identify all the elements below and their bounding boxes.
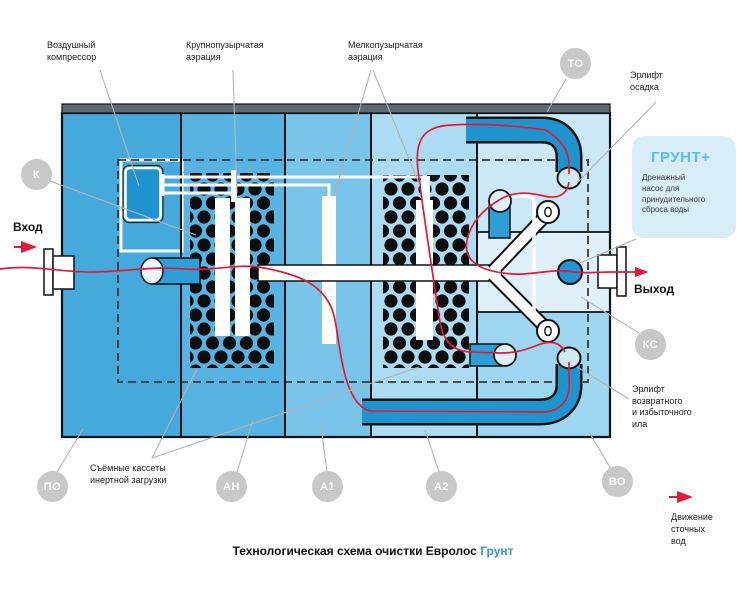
compressor-unit [123,166,163,223]
grunt-plus-description: Дренажный насос для принудительного сбро… [642,173,728,216]
inlet-pipe [53,256,74,289]
grunt-plus-box: ГРУНТ+ Дренажный насос для принудительно… [632,136,736,238]
page-title: Технологическая схема очистки Евролос Гр… [0,544,746,558]
label-fine-aeration: Мелкопузырчатая аэрация [348,40,423,63]
inlet-distributor [141,258,200,284]
tank-lid [62,104,610,113]
title-blue-part: Грунт [480,544,513,558]
badge-compressor: К [21,159,52,190]
badge-vo: ВО [602,466,633,497]
badge-a1: А1 [312,471,343,502]
diagram-canvas: Воздушный компрессор Крупнопузырчатая аэ… [0,0,746,600]
label-coarse-aeration: Крупнопузырчатая аэрация [186,40,264,63]
badge-ks: КС [635,329,666,360]
title-black-part: Технологическая схема очистки Евролос [232,544,480,558]
badge-to: ТО [560,48,591,79]
badge-a2: А2 [426,471,457,502]
legend-flow-text: Движение сточных вод [671,511,713,547]
grunt-plus-title: ГРУНТ+ [651,149,728,166]
badge-an: АН [216,471,247,502]
label-sludge-airlift: Эрлифт осадка [630,70,663,93]
label-cassettes: Съёмные кассеты инертной загрузки [90,463,166,486]
inlet-flange [44,249,53,295]
label-inlet: Вход [13,220,43,234]
label-return-airlift: Эрлифт возвратного и избыточного ила [632,384,692,431]
badge-po: ПО [37,471,68,502]
label-outlet: Выход [634,282,674,296]
label-air-compressor: Воздушный компрессор [47,40,96,63]
